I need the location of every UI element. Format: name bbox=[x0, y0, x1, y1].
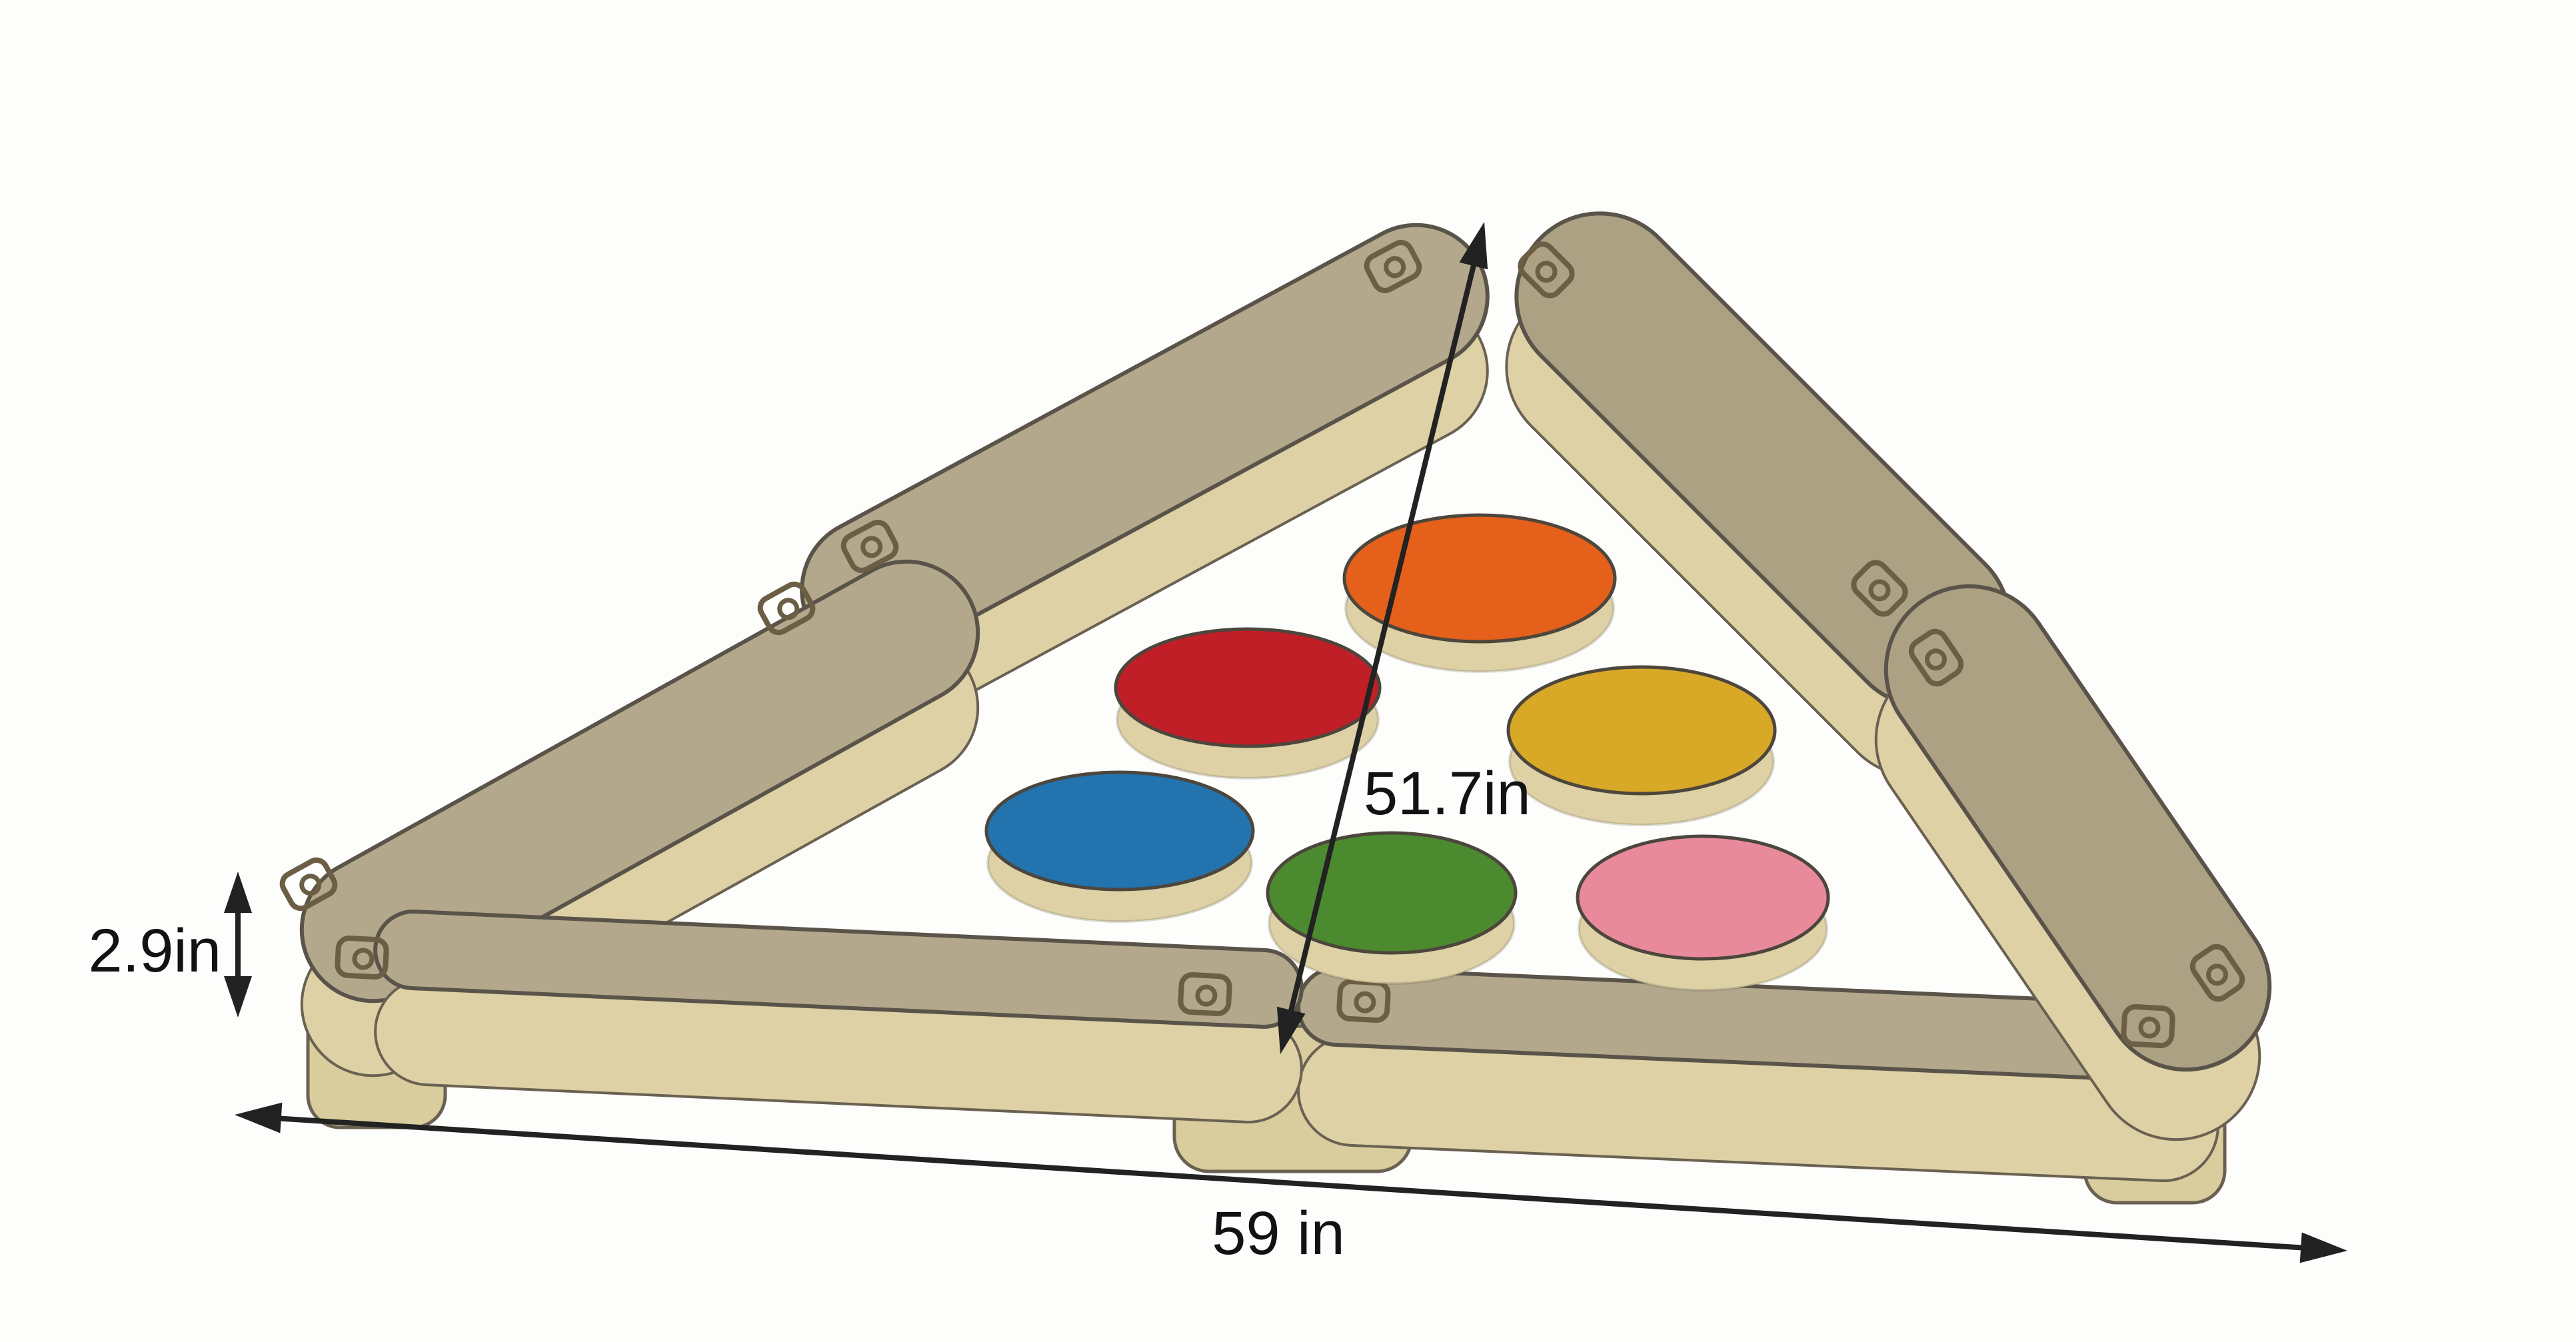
beam-bottom-left bbox=[373, 910, 1304, 1125]
disc-orange bbox=[1344, 515, 1615, 672]
base-dimension-label: 59 in bbox=[1212, 1199, 1345, 1267]
disc-blue bbox=[986, 772, 1253, 922]
disc-pink bbox=[1578, 836, 1828, 990]
diagram-canvas: 2.9in 51.7in 59 in bbox=[0, 0, 2576, 1342]
height-dimension-arrow bbox=[224, 872, 252, 1017]
disc-red bbox=[1116, 629, 1380, 778]
height-dimension-label: 2.9in bbox=[89, 917, 222, 985]
product-dimension-diagram: 2.9in 51.7in 59 in bbox=[0, 0, 2576, 1342]
disc-yellow bbox=[1508, 667, 1775, 825]
diagonal-dimension-label: 51.7in bbox=[1364, 760, 1531, 828]
